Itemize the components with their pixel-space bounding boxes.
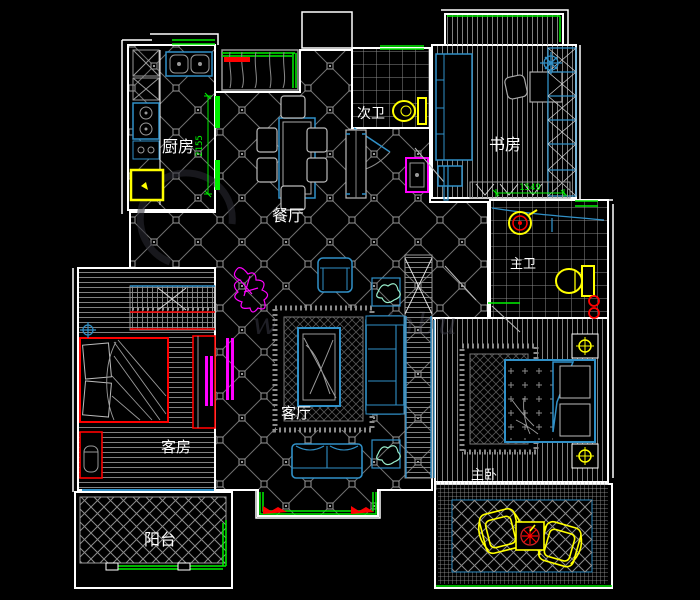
sliding-door-handle-2: [231, 338, 234, 400]
tv-feature-wall: [405, 255, 432, 478]
dim-kitchen-text: 2155: [195, 135, 205, 157]
loveseat-south: [292, 444, 362, 478]
hall-basin: [406, 158, 428, 192]
label-kitchen: 厨房: [162, 138, 194, 156]
kitchen-door-leaf-2: [215, 160, 220, 190]
master-bath-toilet: [556, 266, 594, 296]
stair-lobby-notch: [302, 12, 352, 48]
label-guest: 客房: [161, 439, 191, 456]
master-bath-floor: [490, 200, 608, 318]
sliding-door-handle-1: [226, 338, 229, 400]
nightstand-north: [572, 334, 598, 358]
kitchen-window: [172, 40, 215, 44]
floor-plan-canvas: www.js-jnbu: [0, 0, 700, 600]
label-living: 客厅: [281, 405, 311, 422]
label-dining: 餐厅: [272, 207, 304, 225]
guest-bed: [80, 338, 168, 422]
master-pillow-2: [560, 404, 590, 436]
master-bed: [505, 360, 595, 442]
shoe-cabinet: [346, 130, 366, 198]
label-master-bedroom: 主卧: [471, 467, 497, 482]
study-bay-window: [445, 14, 563, 45]
kitchen-appliance: [131, 170, 163, 200]
armchair-north: [318, 258, 352, 292]
kitchen-sink: [166, 52, 212, 76]
guest-dresser: [193, 336, 215, 428]
bedroom-threshold-hatch: [436, 482, 608, 490]
label-master-bath: 主卫: [510, 256, 536, 271]
sw-balcony-deck: [80, 497, 226, 563]
label-second-bath: 次卫: [357, 105, 385, 121]
nightstand-south: [572, 444, 598, 468]
guest-wardrobe: [130, 286, 215, 330]
kitchen-door-leaf: [215, 96, 220, 128]
closet-red-band: [224, 57, 250, 62]
dim-study-text: 1549: [519, 183, 541, 193]
floor-plan-drawing: www.js-jnbu: [0, 0, 700, 600]
guest-chair: [80, 432, 102, 478]
master-pillow-1: [560, 366, 590, 398]
sofa-main: [366, 316, 404, 414]
label-study: 书房: [489, 136, 521, 154]
balcony-table: [516, 522, 544, 550]
kitchen-stove: [133, 103, 159, 159]
label-sw-balcony: 阳台: [144, 531, 176, 549]
second-bath-toilet: [393, 98, 426, 124]
